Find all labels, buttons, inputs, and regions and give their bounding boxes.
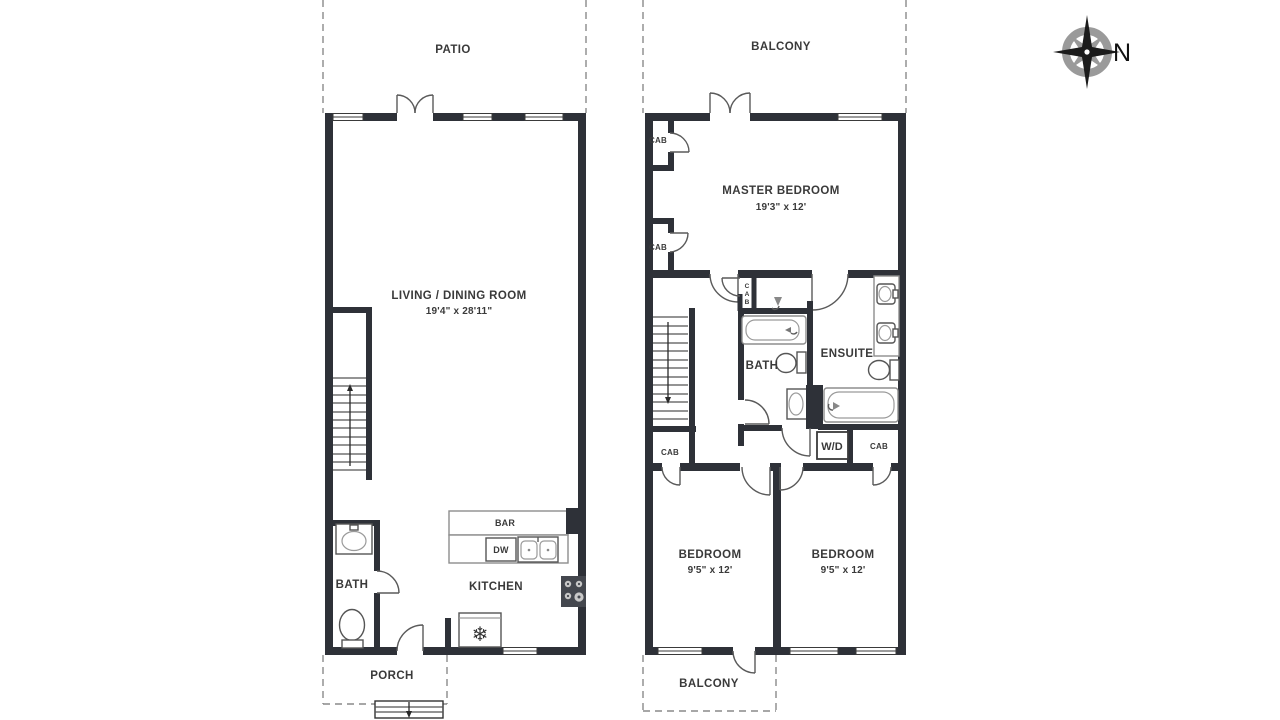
- toilet: [776, 352, 806, 373]
- master-bedroom-label: MASTER BEDROOM: [722, 185, 839, 197]
- window: [838, 114, 882, 121]
- hall-strip: [646, 424, 850, 467]
- toilet: [869, 360, 900, 380]
- compass-rose: N: [1053, 15, 1131, 89]
- toilet: [340, 610, 365, 649]
- kitchen-first-floor: ❄: [448, 508, 586, 651]
- stove: [561, 576, 586, 607]
- entry-door: [397, 625, 423, 651]
- patio-french-doors: [397, 95, 433, 113]
- cab-label-bottom-right: CAB: [870, 442, 888, 451]
- fridge: ❄: [459, 613, 501, 647]
- cab-label-top: CAB: [649, 136, 667, 145]
- bedroom-door-left: [742, 467, 770, 495]
- porch-label: PORCH: [370, 670, 414, 682]
- laundry-door: [782, 428, 810, 456]
- master-bedroom-dims: 19'3" x 12': [756, 202, 807, 213]
- balcony-top-label: BALCONY: [751, 41, 811, 53]
- kitchen-label: KITCHEN: [469, 581, 523, 593]
- cab-label-hall: CAB: [744, 283, 751, 307]
- second-floor-plan: BALCONY MASTER BEDROOM 19'3" x 12' CAB C…: [643, 0, 906, 711]
- compass-north-label: N: [1113, 39, 1131, 67]
- exterior-walls-first-floor: [325, 113, 586, 655]
- double-vanity: [874, 276, 899, 356]
- balcony-door: [733, 651, 755, 673]
- bath-label: BATH: [336, 579, 369, 591]
- balcony-french-doors: [710, 93, 750, 113]
- living-dining-dims: 19'4" x 28'11": [426, 306, 493, 317]
- balcony-top-boundary: [643, 0, 906, 113]
- wall-block: [806, 385, 823, 429]
- ensuite-door: [812, 274, 848, 310]
- window: [333, 114, 363, 121]
- bedroom-left-dims: 9'5" x 12': [688, 565, 733, 576]
- bath-label-second: BATH: [746, 360, 779, 372]
- first-floor-plan: ❄ PATIO LIVING / DINING ROOM 19'4" x 28'…: [323, 0, 586, 718]
- bathroom-sink: [787, 389, 807, 419]
- bedroom-left-label: BEDROOM: [679, 549, 742, 561]
- snowflake-icon: ❄: [472, 622, 489, 646]
- window: [856, 648, 896, 655]
- patio-boundary: [323, 0, 586, 113]
- staircase-second-floor: [653, 308, 692, 467]
- kitchen-sink: [518, 537, 558, 562]
- floor-plan-canvas: ❄ PATIO LIVING / DINING ROOM 19'4" x 28'…: [0, 0, 1280, 720]
- bar-label: BAR: [495, 518, 515, 528]
- pantry-block: [566, 508, 586, 534]
- balcony-bottom-label: BALCONY: [679, 678, 739, 690]
- bedroom-closet-door-left: [662, 467, 680, 485]
- washer-dryer-label: W/D: [821, 441, 842, 453]
- window: [658, 648, 702, 655]
- window: [463, 114, 492, 121]
- floor-plan-page: ❄ PATIO LIVING / DINING ROOM 19'4" x 28'…: [0, 0, 1280, 720]
- bathtub: [742, 316, 806, 344]
- bathtub: [824, 388, 898, 422]
- shower-head-icon: [772, 297, 782, 309]
- bedroom-right-label: BEDROOM: [812, 549, 875, 561]
- bedroom-closet-door-right: [873, 467, 891, 485]
- porch-steps: [375, 701, 443, 718]
- ensuite-label: ENSUITE: [821, 348, 874, 360]
- window: [790, 648, 838, 655]
- bedroom-right-dims: 9'5" x 12': [821, 565, 866, 576]
- patio-label: PATIO: [435, 44, 470, 56]
- cab-label-mid: CAB: [649, 243, 667, 252]
- bedroom-door-right: [780, 467, 803, 490]
- cab-label-bottom-left: CAB: [661, 448, 679, 457]
- bathroom-sink: [336, 524, 372, 554]
- window: [525, 114, 563, 121]
- window: [503, 648, 537, 655]
- compass-center: [1084, 49, 1089, 54]
- living-dining-label: LIVING / DINING ROOM: [391, 290, 526, 302]
- dishwasher-label: DW: [493, 545, 509, 555]
